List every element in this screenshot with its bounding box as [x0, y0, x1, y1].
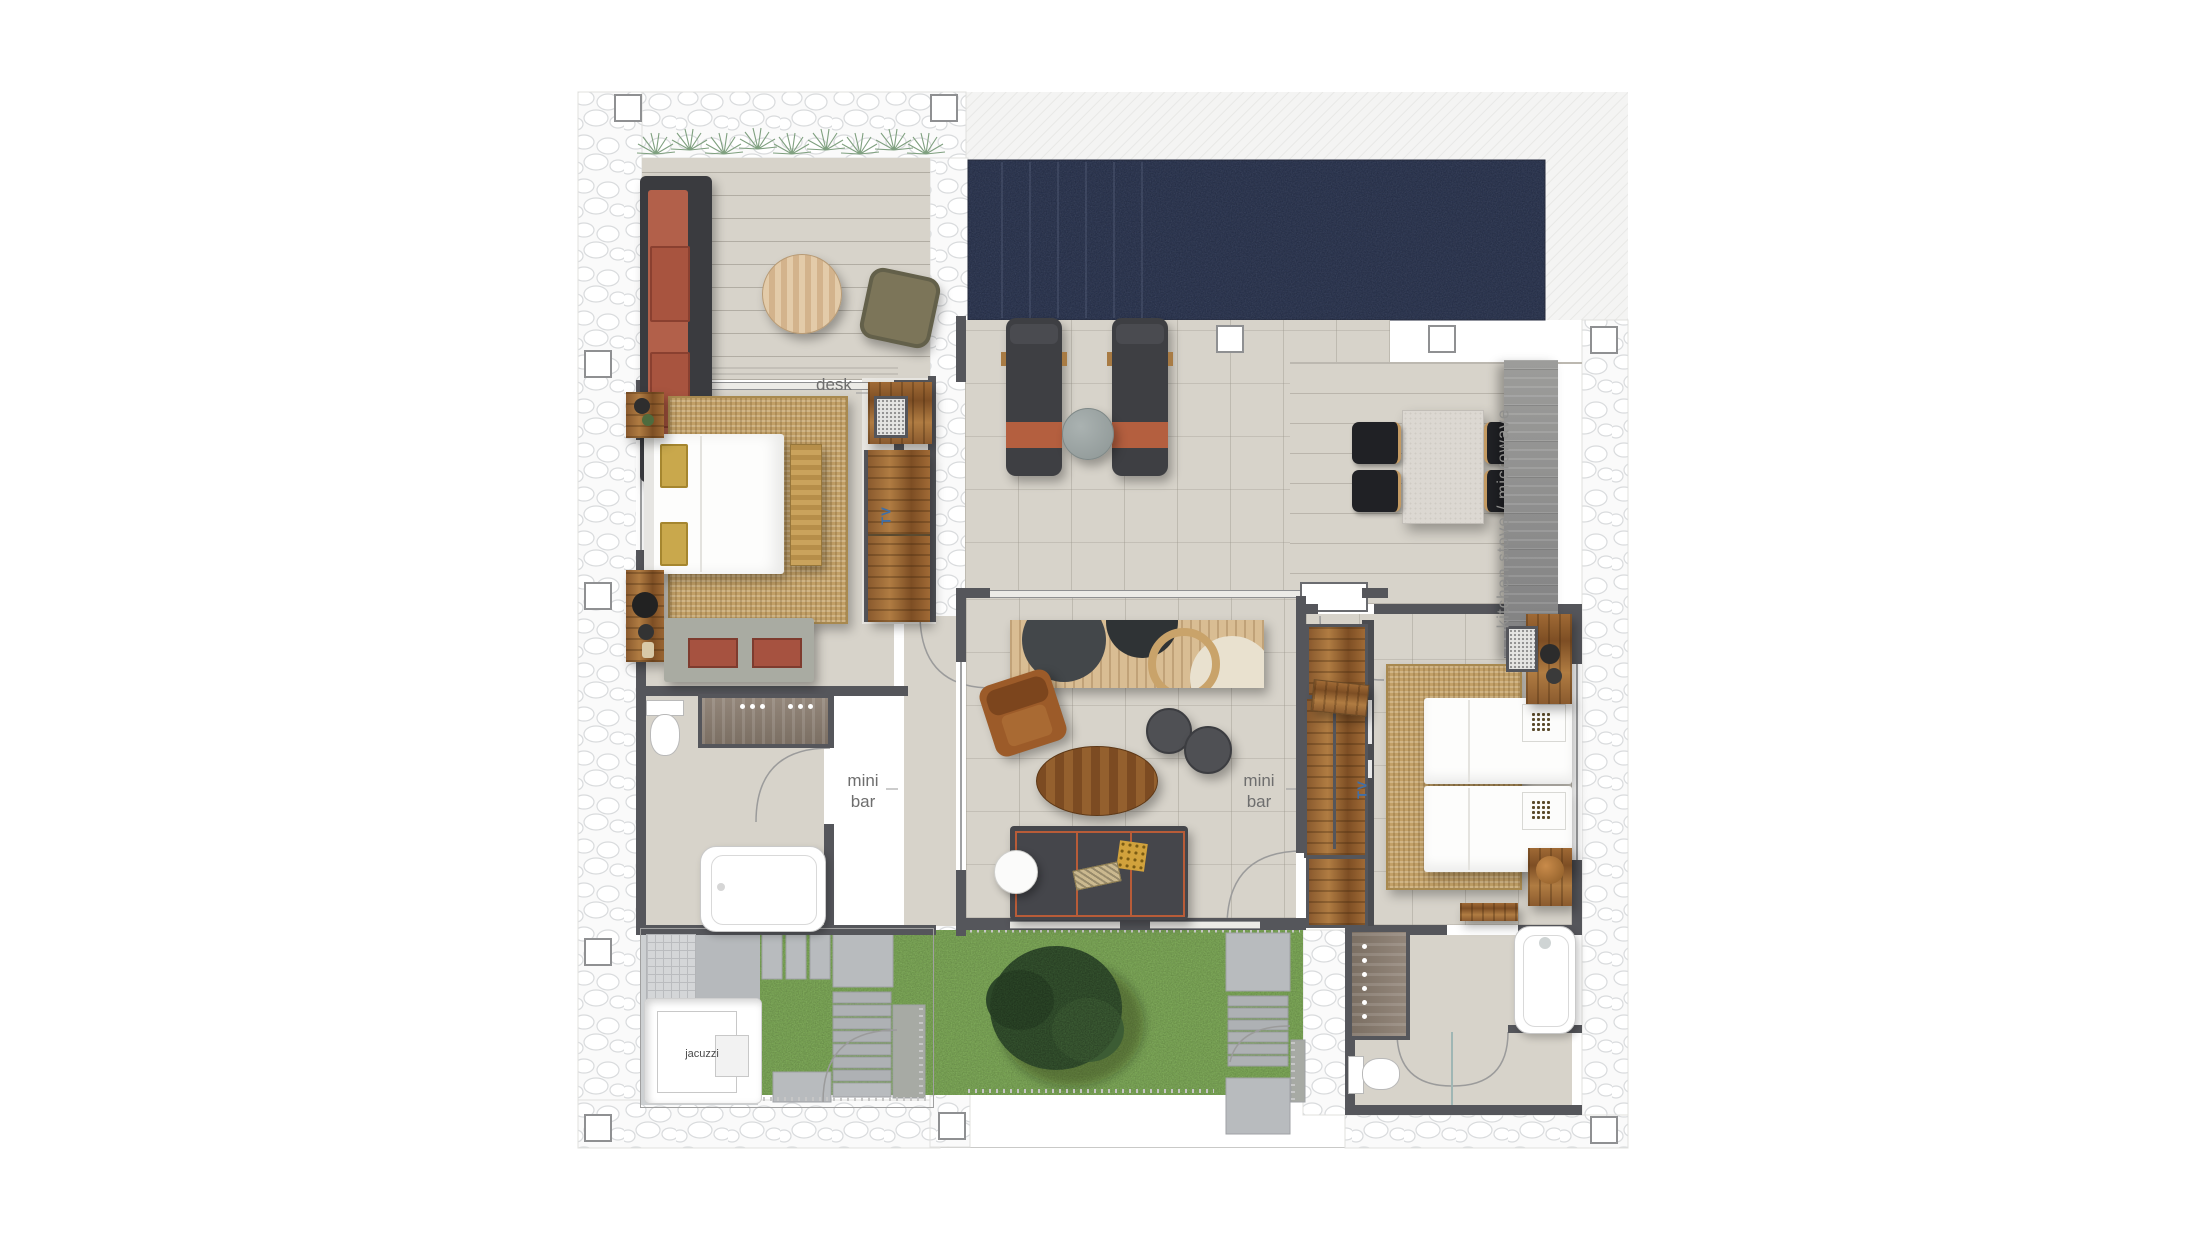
- sun-lounger: [1006, 318, 1062, 476]
- rug-circle-ring: [1148, 628, 1220, 688]
- faucet-dot: [1362, 986, 1367, 991]
- bed-pillow: [1522, 792, 1566, 830]
- duvet-fold-line: [1468, 700, 1470, 782]
- pillow-floral-print: [1531, 800, 1551, 820]
- lounger-headrest: [1116, 324, 1164, 344]
- faucet-dot: [788, 704, 793, 709]
- sofa-cushion: [688, 638, 738, 668]
- bathroom-right-vanity: [1348, 928, 1410, 1040]
- column-marker: [1428, 325, 1456, 353]
- bathtub-drain: [717, 883, 725, 891]
- desk-pot: [1540, 644, 1560, 664]
- bed-double: [644, 434, 784, 574]
- mini-bar-label-line1: mini: [1232, 770, 1286, 791]
- outdoor-lounger-grid: [646, 934, 696, 1008]
- column-marker: [584, 350, 612, 378]
- bathtub-inner: [711, 855, 817, 925]
- tv-label-left: TV: [879, 502, 894, 530]
- dresser-lamp: [632, 592, 658, 618]
- wall: [956, 316, 966, 382]
- nightstand-pot: [634, 398, 650, 414]
- sliding-glass-door-garden: [1150, 921, 1260, 929]
- mini-bar-label-right: mini bar: [1232, 770, 1286, 812]
- duvet-fold-line: [1468, 788, 1470, 870]
- pouf: [1184, 726, 1232, 774]
- side-table-round: [994, 850, 1038, 894]
- daybed-cushion: [650, 246, 690, 322]
- plan-linework-layer: [0, 0, 2200, 1238]
- wardrobe-tv-cabinet-left: [868, 450, 930, 622]
- wall: [1306, 604, 1318, 614]
- faucet-dot: [760, 704, 765, 709]
- column-marker: [1590, 326, 1618, 354]
- window-bedroom-right: [1572, 664, 1582, 860]
- toilet-bowl: [1362, 1058, 1400, 1090]
- lounger-knob: [1001, 352, 1006, 366]
- kitchen-counter-label: kitchen stove / microwave: [1493, 384, 1514, 654]
- mini-bar-label-line2: bar: [836, 791, 890, 812]
- planter-plants: [637, 128, 945, 154]
- lounger-cushion-band: [1112, 422, 1168, 448]
- bed-headboard: [644, 434, 654, 574]
- bedroom-left-sofa: [664, 618, 814, 682]
- window-living-room-west: [956, 662, 966, 870]
- bathtub-left: [700, 846, 826, 932]
- faucet-dot: [750, 704, 755, 709]
- deck-side-table: [1062, 408, 1114, 460]
- wall: [1345, 1105, 1582, 1115]
- terrace-pouf: [857, 265, 942, 350]
- coffee-table-oval: [1036, 746, 1158, 816]
- faucet-dot: [798, 704, 803, 709]
- lounger-headrest: [1010, 324, 1058, 344]
- toilet-bowl: [650, 714, 680, 756]
- column-marker: [938, 1112, 966, 1140]
- bathroom-left-vanity: [698, 694, 832, 748]
- faucet-dot: [808, 704, 813, 709]
- dresser: [626, 570, 664, 662]
- mini-bar-label-left: mini bar: [836, 770, 890, 812]
- wall: [636, 696, 646, 935]
- tv-label-right: TV: [1355, 776, 1370, 804]
- column-marker: [930, 94, 958, 122]
- cabinet-divider: [1333, 699, 1336, 849]
- terrace-step-lines: [702, 368, 898, 374]
- dining-chair: [1352, 470, 1401, 512]
- floor-plan-canvas: desk mini bar mini bar kitchen stove / m…: [0, 0, 2200, 1238]
- mini-bar-label-line1: mini: [836, 770, 890, 791]
- pillow-floral-print: [1531, 712, 1551, 732]
- jacuzzi-label: jacuzzi: [664, 1044, 740, 1065]
- mini-bar-label-line2: bar: [1232, 791, 1286, 812]
- mini-bar-cabinet: [1306, 856, 1368, 928]
- bed-twin: [1424, 698, 1572, 784]
- column-marker: [584, 1114, 612, 1142]
- dresser-item: [642, 642, 654, 658]
- wall: [1362, 588, 1388, 598]
- bed-pillow: [660, 522, 688, 566]
- bathtub-faucet: [1539, 937, 1551, 949]
- duvet-fold-line: [700, 436, 702, 572]
- dining-chair: [1352, 422, 1401, 464]
- sofa-cushion: [752, 638, 802, 668]
- sofa-cushion-patterned: [1116, 840, 1148, 872]
- dining-table: [1402, 410, 1484, 524]
- column-marker: [1590, 1116, 1618, 1144]
- lounger-cushion-band: [1006, 422, 1062, 448]
- bed-pillow: [660, 444, 688, 488]
- faucet-dot: [740, 704, 745, 709]
- column-marker: [584, 582, 612, 610]
- entry-door-leaf: [1310, 679, 1369, 717]
- terrace-round-table: [762, 254, 842, 334]
- faucet-dot: [1362, 972, 1367, 977]
- bathtub-right: [1514, 926, 1576, 1034]
- desk-pot: [1546, 668, 1562, 684]
- lounger-knob: [1168, 352, 1173, 366]
- nightstand-plant: [642, 414, 654, 426]
- door-mat-bench: [1460, 903, 1518, 921]
- lounger-knob: [1107, 352, 1112, 366]
- faucet-dot: [1362, 1000, 1367, 1005]
- sliding-glass-door-living-room: [990, 590, 1302, 598]
- sliding-glass-door-garden: [1010, 921, 1120, 929]
- copper-stool: [1536, 856, 1564, 884]
- lounger-knob: [1062, 352, 1067, 366]
- sun-lounger: [1112, 318, 1168, 476]
- bed-bench: [790, 444, 822, 566]
- column-marker: [1216, 325, 1244, 353]
- column-marker: [584, 938, 612, 966]
- faucet-dot: [1362, 958, 1367, 963]
- faucet-dot: [1362, 944, 1367, 949]
- desk-chair: [874, 396, 908, 438]
- nightstand: [626, 392, 664, 438]
- nightstand: [1528, 848, 1572, 906]
- bed-pillow: [1522, 704, 1566, 742]
- wardrobe-divider: [868, 534, 930, 536]
- column-marker: [614, 94, 642, 122]
- dresser-bowl: [638, 624, 654, 640]
- desk-label: desk: [816, 374, 852, 395]
- faucet-dot: [1362, 1014, 1367, 1019]
